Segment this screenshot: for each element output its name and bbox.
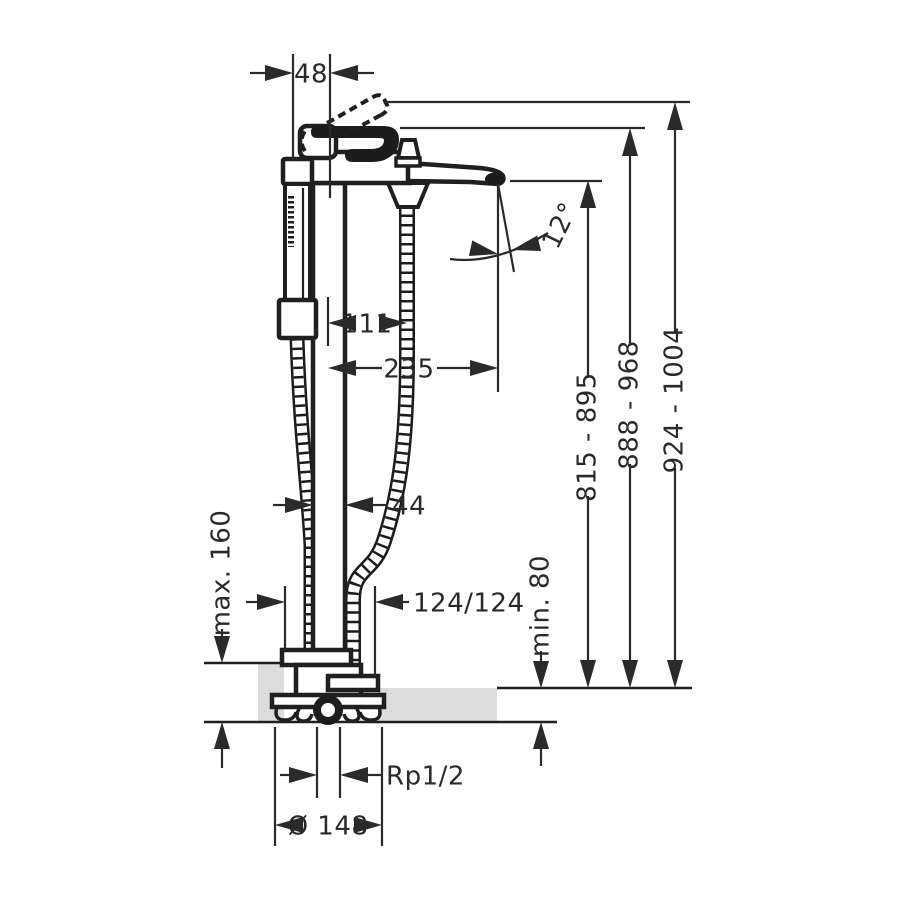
technical-drawing: 48 111 235 12° 815 - 895 888 - 968 924 -… xyxy=(0,0,900,900)
base-plate-lower xyxy=(328,676,378,690)
dim-label-spout-height-range: 815 - 895 xyxy=(573,372,603,502)
pipe-connection-inner xyxy=(321,703,335,717)
dim-label-column-width: 44 xyxy=(392,492,426,522)
hand-shower-holder xyxy=(279,300,316,338)
hand-shower-head xyxy=(283,159,312,184)
dim-label-spout-angle: 12° xyxy=(537,198,585,254)
dim-label-hose-drop-offset: 111 xyxy=(341,310,392,340)
diverter-knob xyxy=(398,140,419,158)
dim-label-handle-offset: 48 xyxy=(294,60,328,90)
hand-shower xyxy=(279,159,316,338)
dim-label-total-height-range: 924 - 1004 xyxy=(660,327,690,474)
installation-drawing-page: 48 111 235 12° 815 - 895 888 - 968 924 -… xyxy=(0,0,900,900)
floor-slab-left xyxy=(258,663,284,722)
floor-slab-right xyxy=(378,688,497,722)
diverter-collar xyxy=(396,158,420,166)
dim-label-handle-height-range: 888 - 968 xyxy=(615,340,645,470)
dim-label-floor-buildup-min: min. 80 xyxy=(526,555,556,657)
dim-label-thread-size: Rp1/2 xyxy=(386,762,465,792)
dim-label-floor-buildup-max: max. 160 xyxy=(207,510,237,637)
base-assembly xyxy=(272,650,384,725)
hose-outlet-support xyxy=(388,183,428,207)
dim-label-hose-connection: 124/124 xyxy=(413,589,525,619)
riser-column xyxy=(313,183,345,652)
spout-aerator xyxy=(485,173,505,186)
dim-label-spout-reach: 235 xyxy=(383,355,434,385)
shower-hose-left xyxy=(297,338,311,651)
dim-label-base-diameter: Ø 148 xyxy=(288,812,369,842)
